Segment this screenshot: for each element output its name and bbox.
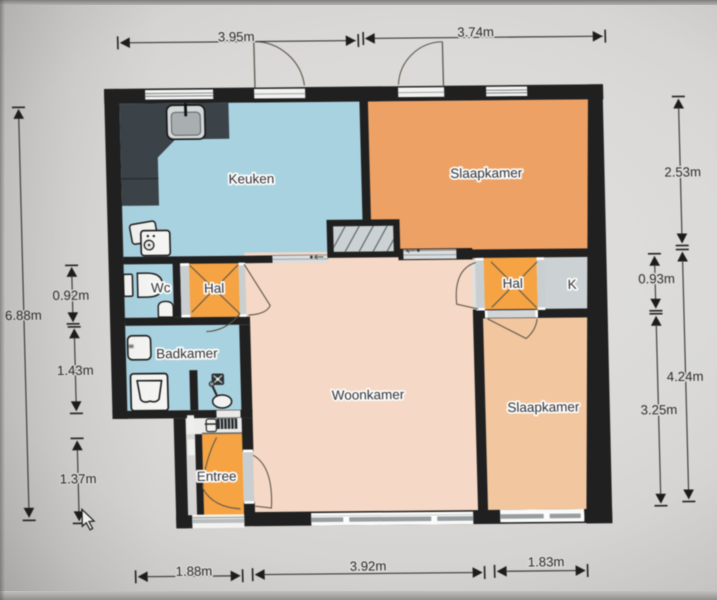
svg-text:0.93m: 0.93m [638, 271, 675, 286]
svg-text:Woonkamer: Woonkamer [332, 387, 405, 403]
svg-text:Hal: Hal [204, 281, 225, 296]
svg-text:2.53m: 2.53m [664, 164, 701, 179]
svg-text:Entree: Entree [197, 469, 237, 484]
svg-text:Keuken: Keuken [228, 171, 274, 186]
svg-text:1.43m: 1.43m [57, 363, 94, 378]
svg-text:6.88m: 6.88m [5, 308, 42, 323]
svg-text:1.83m: 1.83m [528, 554, 565, 569]
svg-text:3.92m: 3.92m [350, 558, 387, 573]
svg-text:4.24m: 4.24m [667, 369, 704, 384]
svg-text:0.92m: 0.92m [52, 288, 89, 303]
svg-text:1.37m: 1.37m [60, 471, 97, 486]
svg-text:3.25m: 3.25m [640, 402, 677, 417]
svg-text:1.88m: 1.88m [175, 564, 212, 579]
svg-text:3.95m: 3.95m [218, 29, 255, 44]
svg-text:K: K [567, 277, 576, 292]
svg-text:Slaapkamer: Slaapkamer [507, 399, 580, 415]
svg-text:Wc: Wc [151, 280, 171, 295]
svg-text:Hal: Hal [502, 276, 523, 291]
svg-text:Badkamer: Badkamer [156, 346, 218, 362]
svg-text:Slaapkamer: Slaapkamer [450, 165, 523, 181]
svg-text:3.74m: 3.74m [457, 24, 494, 39]
